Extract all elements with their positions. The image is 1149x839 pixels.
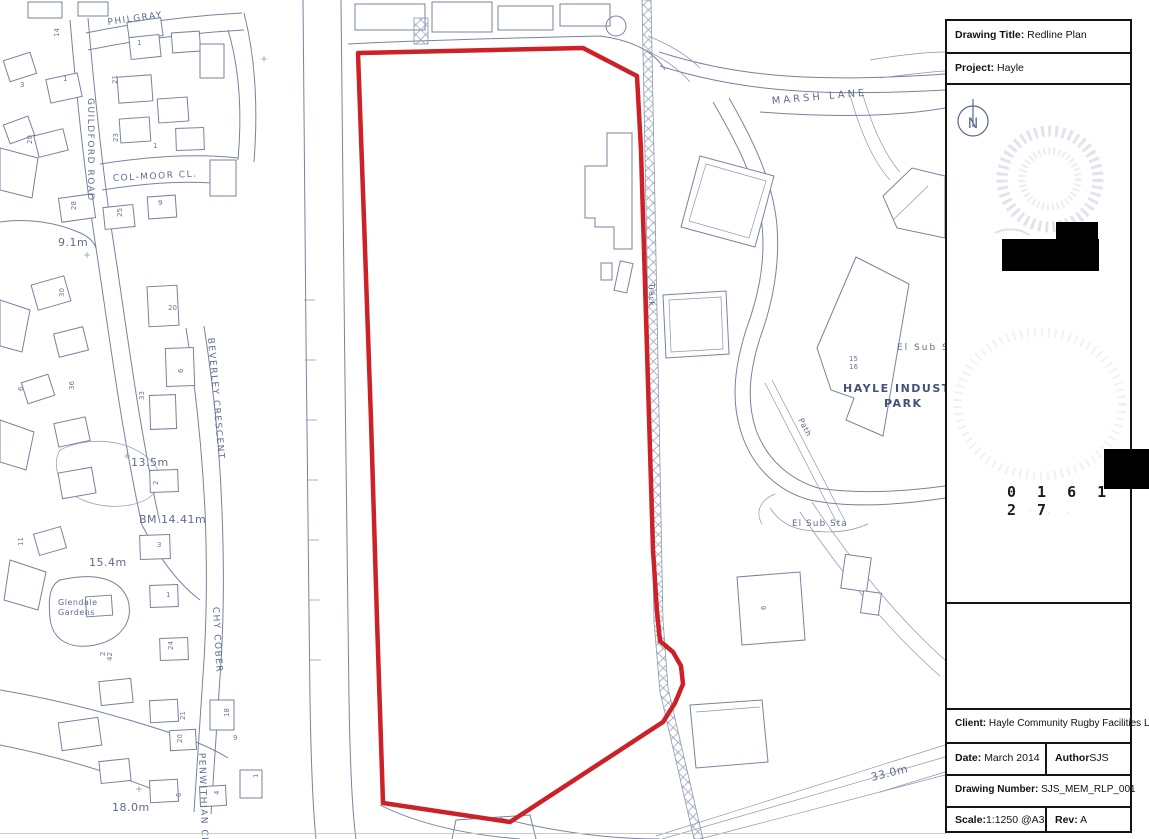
client-label: Client: (955, 718, 986, 729)
building-outline (54, 327, 89, 358)
building-outline (78, 2, 108, 16)
building-outline (614, 261, 633, 293)
north-arrow-icon: N (958, 99, 988, 136)
building-outline (585, 133, 632, 249)
building-outline (157, 97, 189, 123)
author-label: Author (1055, 752, 1089, 764)
building-outline (149, 779, 178, 802)
house-number: 3 (20, 81, 24, 89)
house-number: 4 (213, 790, 221, 795)
street-label-glendale: Glendale (58, 598, 98, 607)
street-label-chy-cober: CHY COBER (210, 607, 223, 674)
house-number: 20 (176, 734, 184, 743)
house-number: 21 (111, 75, 119, 84)
building-outline (129, 34, 161, 59)
spot-height-33-0: 33.0m (870, 762, 910, 784)
house-number: 1 (166, 591, 170, 599)
building-outline (3, 52, 36, 82)
scan-edge-line (0, 833, 946, 834)
unit-number-16: 16 (849, 363, 858, 371)
building-outline (210, 160, 236, 196)
house-number: 11 (17, 537, 25, 546)
rev-label: Rev: (1055, 814, 1078, 826)
building-outline (99, 678, 133, 705)
drawing-number-label: Drawing Number: (955, 784, 1038, 795)
building-outline (28, 2, 62, 18)
project-value: Hayle (997, 62, 1024, 74)
house-number: 2 (99, 652, 107, 656)
industrial-buildings-layer (585, 133, 945, 768)
house-number: 1 (252, 774, 260, 778)
date-author-row: Date: March 2014 AuthorSJS (947, 742, 1130, 774)
house-number: 23 (112, 133, 120, 142)
building-outline (737, 572, 805, 645)
project-row: Project: Hayle (947, 52, 1130, 83)
stamp-area-graphics: N (947, 85, 1130, 604)
building-outline (861, 591, 882, 615)
place-label-park: PARK (884, 397, 923, 410)
building-outline (601, 263, 612, 280)
unit-number-6: 6 (760, 605, 768, 610)
house-number: 36 (68, 381, 76, 390)
house-number: 6 (175, 792, 183, 797)
building-outline (117, 75, 153, 103)
building-outline (58, 717, 102, 750)
street-label-beverley-crescent: BEVERLEY CRESCENT (205, 337, 226, 460)
street-label-penwithian-cl: PENWITHIAN CL (196, 753, 209, 839)
north-letter: N (968, 116, 978, 132)
drawing-title-value: Redline Plan (1027, 29, 1087, 41)
building-outline (149, 699, 178, 722)
house-number: 2 (152, 481, 160, 485)
redline-plan-sheet: PHILGRAY GUILDFORD ROAD COL-MOOR CL. BEV… (0, 0, 1149, 839)
building-outline (58, 467, 96, 499)
scale-rev-row: Scale:1:1250 @A3 Rev: A (947, 806, 1130, 831)
building-outline (176, 128, 205, 151)
rev-value: A (1080, 814, 1087, 826)
building-outline (34, 129, 68, 158)
place-label-path: Path (796, 417, 813, 439)
building-outline (883, 168, 945, 238)
house-number: 20 (168, 304, 177, 312)
unit-number-15: 15 (849, 355, 858, 363)
house-number: 42 (106, 652, 114, 661)
date-value: March 2014 (984, 752, 1039, 764)
house-number: 18 (223, 708, 231, 717)
author-value: SJS (1089, 752, 1108, 764)
house-number: 28 (70, 201, 78, 210)
drawing-number-value: SJS_MEM_RLP_001 (1041, 784, 1136, 795)
house-number: 30 (58, 288, 66, 297)
house-number: 14 (53, 28, 61, 37)
spot-height-18-0: 18.0m (112, 801, 150, 814)
house-number: 1 (137, 39, 141, 47)
project-label: Project: (955, 62, 994, 74)
house-number: 24 (167, 641, 175, 650)
building-outline (663, 291, 729, 358)
drawing-title-label: Drawing Title: (955, 29, 1024, 41)
building-outline (150, 585, 179, 608)
empty-row (947, 602, 1130, 708)
place-label-el-sub-s: El Sub S (897, 343, 950, 353)
scale-label: Scale: (955, 814, 986, 826)
houses-layer (3, 2, 262, 807)
street-label-gardens: Gardens (58, 608, 95, 617)
house-number: 25 (116, 208, 124, 217)
house-number: 33 (138, 391, 146, 400)
house-number: 1 (63, 75, 67, 83)
building-outline (34, 527, 67, 556)
building-outline (21, 374, 54, 404)
stamp-watermark (958, 131, 1122, 476)
house-number: 9 (233, 734, 237, 742)
scale-value: 1:1250 @A3 (986, 814, 1045, 826)
building-outline (54, 417, 90, 447)
spot-height-15-4: 15.4m (89, 556, 127, 569)
building-outline (99, 758, 131, 783)
building-outline (171, 31, 200, 53)
house-number: 21 (179, 711, 187, 720)
drawing-title-row: Drawing Title: Redline Plan (947, 21, 1130, 52)
house-number: 3 (157, 541, 161, 549)
building-outline (690, 700, 768, 768)
building-outline (140, 534, 171, 559)
building-outline (841, 554, 871, 591)
house-number: 9 (158, 199, 162, 207)
drawing-number-row: Drawing Number: SJS_MEM_RLP_001 (947, 774, 1130, 806)
client-value: Hayle Community Rugby Facilities Ltd (989, 718, 1149, 729)
house-number: 20 (26, 135, 34, 144)
red-boundary-line (358, 48, 683, 822)
spot-height-9-1: 9.1m (58, 236, 88, 249)
building-outline (165, 348, 194, 387)
date-label: Date: (955, 752, 981, 764)
stamp-area: N 0 1 6 1 2 7 . - . . (947, 83, 1130, 602)
benchmark-14-41: BM 14.41m (139, 513, 206, 526)
street-label-guildford-road: GUILDFORD ROAD (85, 98, 95, 202)
place-label-el-sub-sta: El Sub Sta (792, 519, 848, 529)
building-outline (200, 44, 224, 78)
client-row: Client: Hayle Community Rugby Facilities… (947, 708, 1130, 742)
redaction-block (1002, 239, 1099, 271)
house-number: 6 (177, 368, 185, 373)
building-outline (149, 395, 176, 430)
title-block-panel: Drawing Title: Redline Plan Project: Hay… (945, 19, 1132, 833)
place-label-track: Track (647, 282, 656, 306)
stamp-number-ghost: . - . . (1009, 505, 1076, 515)
spot-height-13-5: 13.5m (131, 456, 169, 469)
house-number: 1 (153, 142, 157, 150)
building-outline (119, 117, 151, 143)
house-number: 6 (17, 386, 25, 391)
